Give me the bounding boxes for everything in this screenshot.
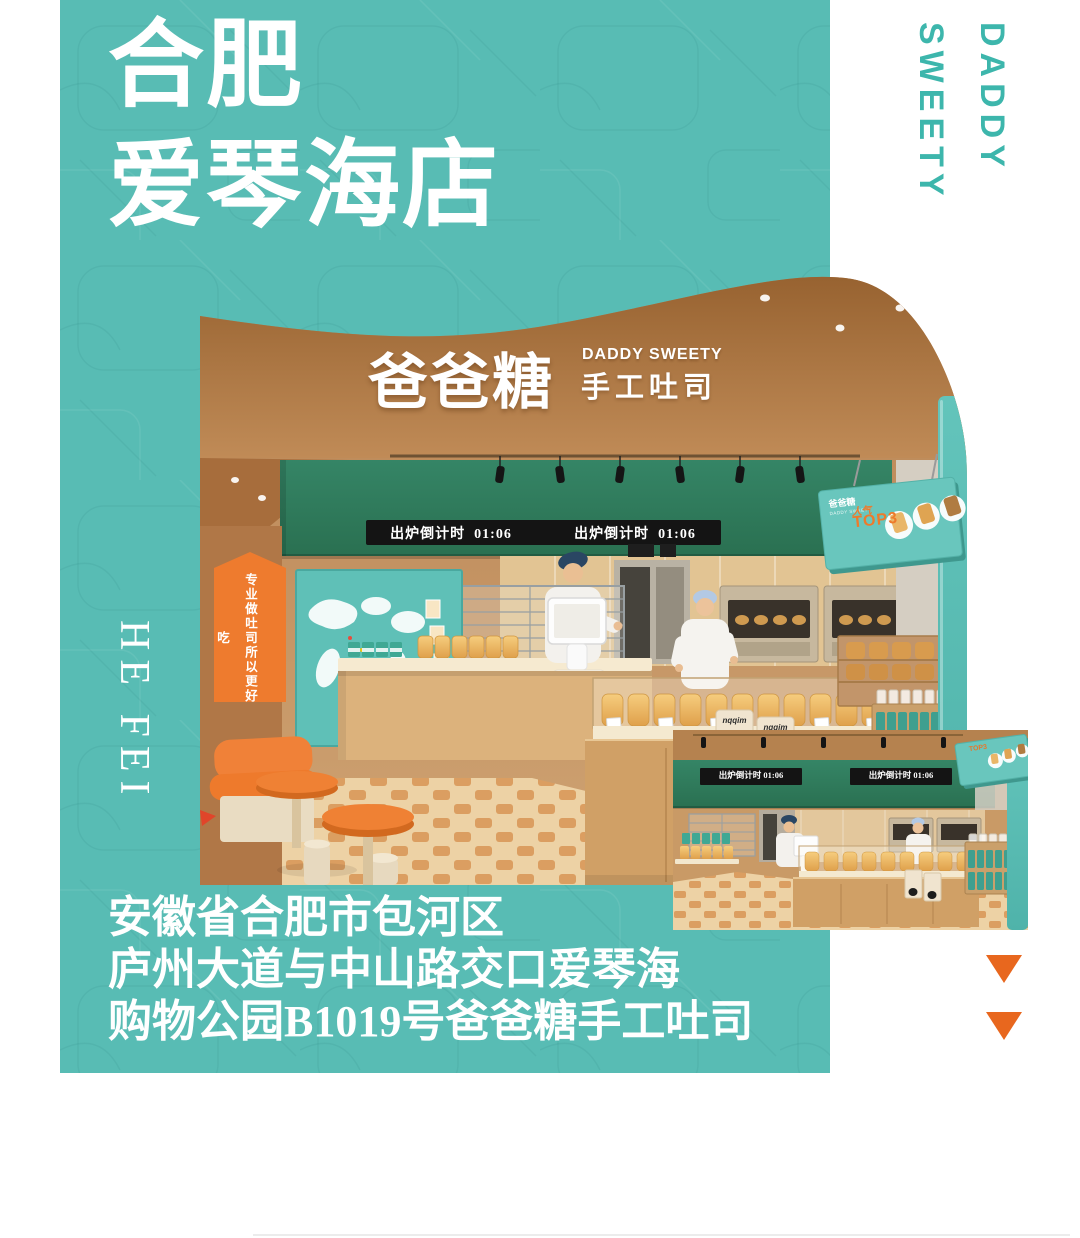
inset-led-countdown-left: 出炉倒计时 01:06 — [700, 769, 802, 781]
bottom-divider — [253, 1234, 1070, 1236]
address-line-2: 庐州大道与中山路交口爱琴海 — [108, 944, 753, 996]
address-line-3: 购物公园B1019号爸爸糖手工吐司 — [108, 996, 753, 1048]
down-triangle-icon — [986, 1012, 1022, 1040]
top3-sign-label: 人气 TOP3 — [851, 501, 899, 529]
led-countdown-left: 出炉倒计时 01:06 — [368, 523, 534, 543]
poster-root: 合肥 爱琴海店 DADDY SWEETY HE FEI — [0, 0, 1080, 1238]
city-vertical-left: HE FEI — [110, 620, 158, 870]
cashier-counter-top — [338, 658, 652, 671]
store-address: 安徽省合肥市包河区 庐州大道与中山路交口爱琴海 购物公园B1019号爸爸糖手工吐… — [108, 892, 753, 1048]
title-city: 合肥 — [108, 6, 500, 126]
title-branch: 爱琴海店 — [108, 126, 500, 246]
inset-left-products — [675, 833, 739, 864]
storefront-sign-cn: 爸爸糖 — [368, 334, 554, 421]
brand-word-daddy: DADDY — [961, 22, 1022, 272]
storefront-sign-en: DADDY SWEETY — [582, 346, 723, 364]
page-title: 合肥 爱琴海店 — [108, 6, 500, 246]
address-line-1: 安徽省合肥市包河区 — [108, 892, 753, 944]
top3-label-en: TOP3 — [852, 513, 898, 529]
flour-bag-label: nqqim — [716, 716, 753, 725]
led-countdown-right: 出炉倒计时 01:06 — [552, 523, 718, 543]
brand-vertical-right: DADDY SWEETY — [898, 22, 1022, 272]
inset-display-counter — [793, 846, 979, 927]
orange-banner-text: 专业做吐司所以更好吃 — [236, 572, 264, 704]
brand-word-sweety: SWEETY — [900, 22, 961, 272]
inset-top3-sign — [955, 734, 1028, 790]
inset-led-countdown-right: 出炉倒计时 01:06 — [850, 769, 952, 781]
storefront-sign-sub: 手工吐司 — [581, 364, 717, 406]
down-triangle-icon — [986, 955, 1022, 983]
